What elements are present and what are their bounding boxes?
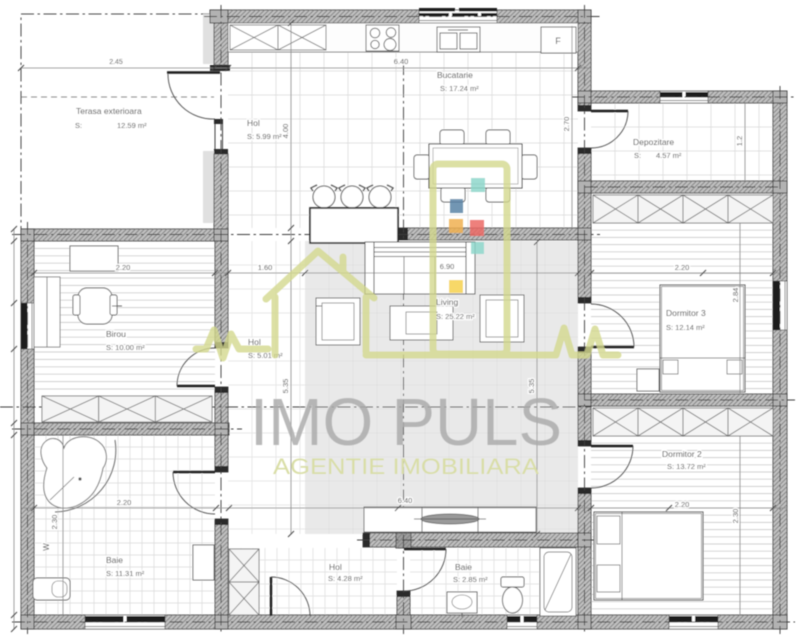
svg-text:2.84: 2.84 xyxy=(731,288,740,303)
svg-text:12.59 m²: 12.59 m² xyxy=(117,121,147,130)
svg-text:6.40: 6.40 xyxy=(398,496,413,505)
svg-text:S: 11.31 m²: S: 11.31 m² xyxy=(106,569,145,578)
svg-text:IMO PULS: IMO PULS xyxy=(250,385,562,460)
svg-text:Dormitor 3: Dormitor 3 xyxy=(666,308,706,318)
svg-text:Bucatarie: Bucatarie xyxy=(437,70,473,80)
svg-text:Terasa exterioara: Terasa exterioara xyxy=(76,106,142,116)
svg-text:S: 17.24 m²: S: 17.24 m² xyxy=(440,84,479,93)
svg-text:6.90: 6.90 xyxy=(440,262,455,271)
svg-text:S:: S: xyxy=(634,151,641,160)
svg-text:4.00: 4.00 xyxy=(281,124,290,139)
svg-text:2.70: 2.70 xyxy=(562,117,571,132)
svg-text:Baie: Baie xyxy=(455,562,472,572)
svg-text:S: 10.00 m²: S: 10.00 m² xyxy=(106,343,145,352)
svg-text:6.40: 6.40 xyxy=(394,57,409,66)
svg-text:S: 25.22 m²: S: 25.22 m² xyxy=(436,312,475,321)
svg-text:Depozitare: Depozitare xyxy=(633,137,674,147)
svg-text:S: 4.28 m²: S: 4.28 m² xyxy=(328,574,363,583)
svg-text:2.20: 2.20 xyxy=(675,263,690,272)
svg-text:2.45: 2.45 xyxy=(109,59,123,66)
svg-text:S:: S: xyxy=(75,121,82,130)
svg-text:1.60: 1.60 xyxy=(258,263,273,272)
svg-text:Baie: Baie xyxy=(106,555,123,565)
svg-text:F: F xyxy=(555,36,561,46)
svg-text:AGENTIE IMOBILIARA: AGENTIE IMOBILIARA xyxy=(273,454,539,479)
svg-text:S: 5.99 m²: S: 5.99 m² xyxy=(247,132,282,141)
svg-text:4.57 m²: 4.57 m² xyxy=(656,151,682,160)
svg-text:S: 2.85 m²: S: 2.85 m² xyxy=(453,575,488,584)
svg-text:2.30: 2.30 xyxy=(50,515,59,530)
svg-text:2.20: 2.20 xyxy=(116,263,131,272)
svg-text:Living: Living xyxy=(436,297,458,307)
svg-text:S: 12.14 m²: S: 12.14 m² xyxy=(666,323,705,332)
svg-text:2.30: 2.30 xyxy=(731,509,740,524)
svg-text:S: 13.72 m²: S: 13.72 m² xyxy=(667,462,706,471)
svg-text:Hol: Hol xyxy=(329,562,342,572)
svg-text:Birou: Birou xyxy=(106,329,126,339)
svg-text:Dormitor 2: Dormitor 2 xyxy=(662,449,702,459)
svg-text:W: W xyxy=(42,543,51,551)
svg-text:2.20: 2.20 xyxy=(675,500,690,509)
svg-text:1.2: 1.2 xyxy=(735,136,744,146)
svg-text:2.20: 2.20 xyxy=(117,498,132,507)
svg-text:Hol: Hol xyxy=(247,118,260,128)
